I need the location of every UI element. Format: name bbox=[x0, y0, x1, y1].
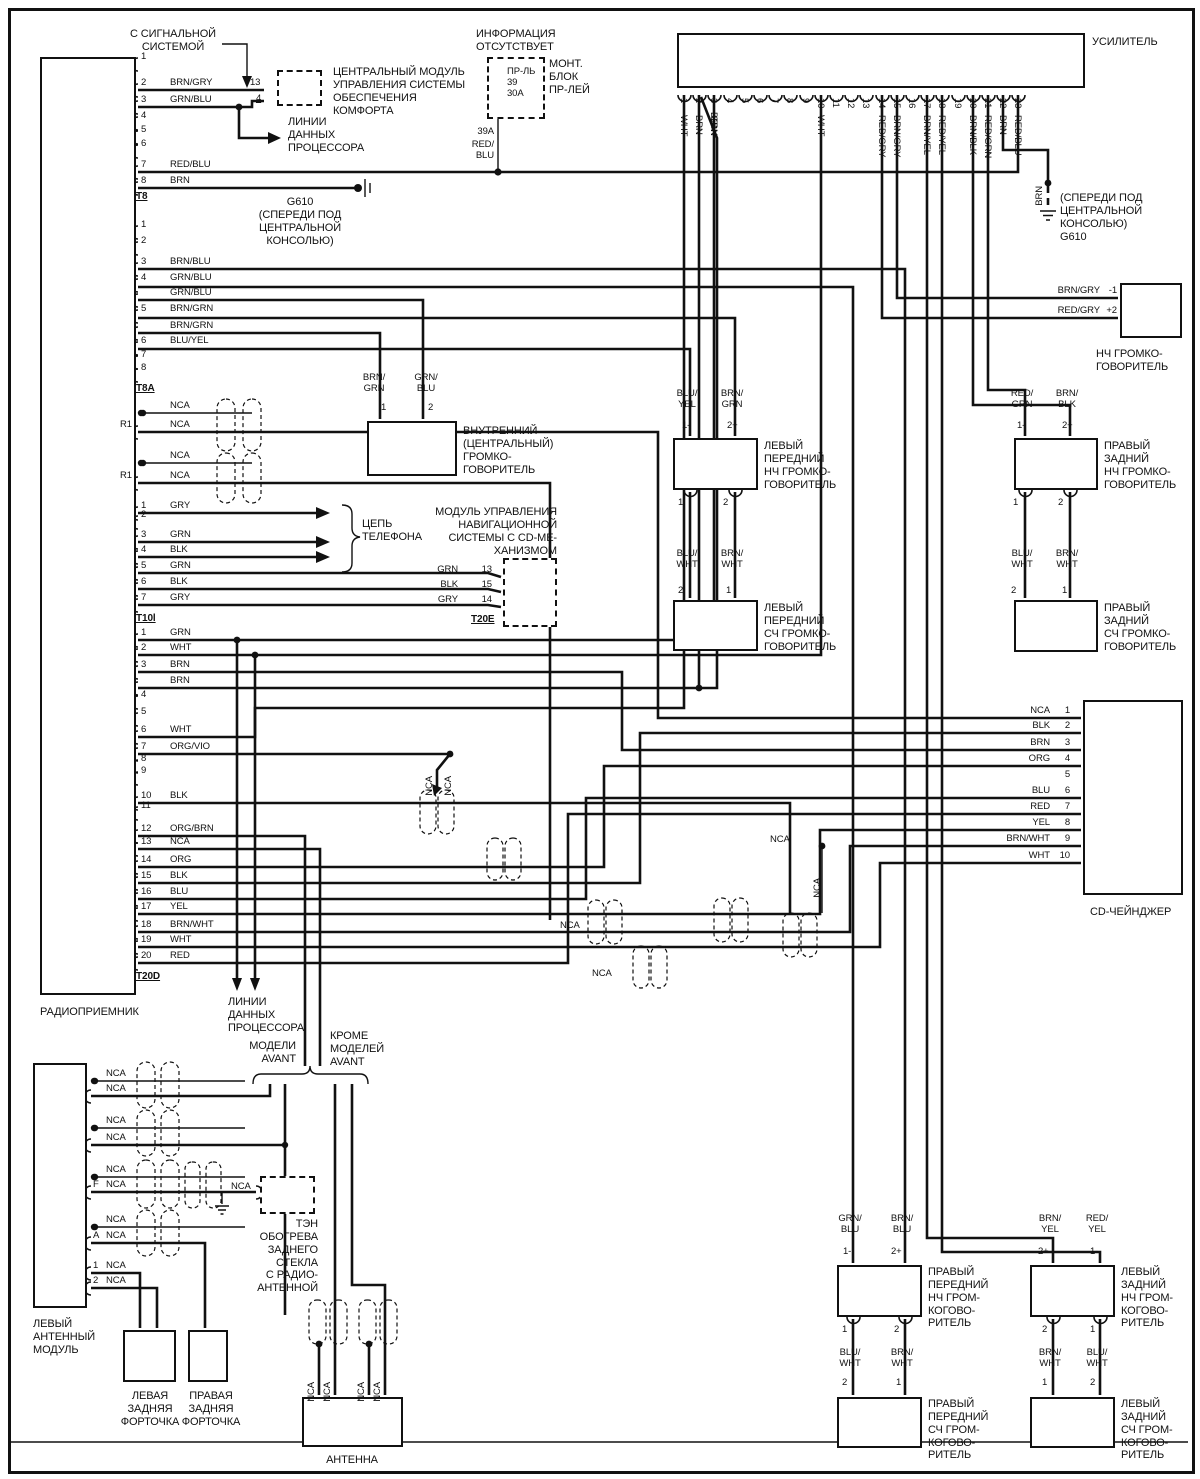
mid-nca-b: NCA bbox=[443, 776, 454, 796]
radio-t8-pin-number: 5 bbox=[141, 124, 146, 135]
left-vent-label: ЛЕВАЯ ЗАДНЯЯ ФОРТОЧКА bbox=[121, 1390, 180, 1429]
antenna-module-pins-pin-number: 1 bbox=[93, 1260, 98, 1271]
lf-front-woofer-box bbox=[673, 438, 758, 490]
ant-nca-2: NCA bbox=[322, 1382, 333, 1402]
rf-mid-p1: 1 bbox=[896, 1377, 901, 1388]
radio-t20d-wire-color: BLK bbox=[170, 870, 188, 881]
amp-pin-number: 22 bbox=[997, 98, 1008, 108]
console-woofer-label: НЧ ГРОМКО- ГОВОРИТЕЛЬ bbox=[1096, 348, 1168, 374]
radio-t20d-pin-number: 20 bbox=[141, 950, 151, 961]
cd-pins-pin-number: 6 bbox=[1065, 785, 1070, 796]
radio-t8a-wire-color: BRN/GRN bbox=[170, 320, 213, 331]
radio-t10l-pin-number: 6 bbox=[141, 576, 146, 587]
nav-t20e-wire-color: GRY bbox=[438, 594, 458, 605]
comfort-pin-4: 4 bbox=[256, 93, 261, 104]
radio-t20d-wire-color: WHT bbox=[170, 934, 191, 945]
radio-t20d-wire-color: NCA bbox=[170, 836, 190, 847]
note-signal-system: С СИГНАЛЬНОЙ СИСТЕМОЙ bbox=[130, 28, 216, 54]
internal-spk-p2: 2 bbox=[428, 402, 433, 413]
console-woofer-box bbox=[1120, 283, 1182, 338]
radio-t20d-pin-number: 7 bbox=[141, 741, 146, 752]
ant-nca-3: NCA bbox=[356, 1382, 367, 1402]
radio-t20d-pin-number: 11 bbox=[141, 800, 151, 811]
lr-link-p1: 1 bbox=[1090, 1324, 1095, 1335]
nav-module-label: МОДУЛЬ УПРАВЛЕНИЯ НАВИГАЦИОННОЙ СИСТЕМЫ … bbox=[435, 506, 557, 557]
radio-t8a-pin-number: 6 bbox=[141, 335, 146, 346]
radio-t20d-wire-color: GRN bbox=[170, 627, 191, 638]
radio-t8a-pin-number: 7 bbox=[141, 349, 146, 360]
lf-woofer-c1: BLU/ YEL bbox=[677, 388, 698, 410]
rr-mid-c1: BLU/ WHT bbox=[1011, 548, 1032, 570]
fuse-wire-color: RED/ BLU bbox=[472, 139, 494, 161]
radio-t8a-pin-number: 2 bbox=[141, 235, 146, 246]
cd-pins-pin-number: 10 bbox=[1060, 850, 1070, 861]
cd-pins-pin-number: 1 bbox=[1065, 705, 1070, 716]
radio-t20d-wire-color: BRN bbox=[170, 675, 190, 686]
amp-pin-number: 12 bbox=[845, 98, 856, 108]
radio-t10l-wire-color: GRY bbox=[170, 592, 190, 603]
rr-woofer-p1: 1- bbox=[1017, 420, 1025, 431]
radio-t8a-pin-number: 5 bbox=[141, 303, 146, 314]
console-woofer-pins-wire-color: RED/GRY bbox=[1058, 305, 1100, 316]
amp-pin-number: 6 bbox=[754, 98, 765, 103]
console-woofer-pins-wire-color: BRN/GRY bbox=[1058, 285, 1100, 296]
radio-t10l-pin-number: 7 bbox=[141, 592, 146, 603]
amp-wire-color: RED/GRY bbox=[876, 115, 887, 157]
radio-r1-wire-color: NCA bbox=[170, 400, 190, 411]
note-data-lines-top: ЛИНИИ ДАННЫХ ПРОЦЕССОРА bbox=[288, 116, 364, 155]
cd-pins-pin-number: 4 bbox=[1065, 753, 1070, 764]
cd-pins-wire-color: BRN/WHT bbox=[1006, 833, 1050, 844]
rr-link-p1: 1 bbox=[1013, 497, 1018, 508]
antenna-box bbox=[302, 1397, 403, 1447]
radio-t8-pin-number: 6 bbox=[141, 138, 146, 149]
mid-nca-e: NCA bbox=[560, 920, 580, 931]
radio-t10l-wire-color: GRY bbox=[170, 500, 190, 511]
antenna-module-pins-wire-color: NCA bbox=[106, 1083, 126, 1094]
nav-t20e-pin-number: 13 bbox=[482, 564, 492, 575]
rf-woofer-c2: BRN/ BLU bbox=[891, 1213, 913, 1235]
cd-pins-wire-color: ORG bbox=[1029, 753, 1050, 764]
radio-t20d-pin-number: 17 bbox=[141, 901, 151, 912]
ant-nca-1: NCA bbox=[306, 1382, 317, 1402]
note-avant: МОДЕЛИ AVANT bbox=[249, 1040, 296, 1066]
rr-mid-p2: 2 bbox=[1011, 585, 1016, 596]
cd-pins-wire-color: BLU bbox=[1032, 785, 1050, 796]
radio-t20d-wire-color: WHT bbox=[170, 642, 191, 653]
rf-mid-c2: BRN/ WHT bbox=[891, 1347, 913, 1369]
heater-label: ТЭН ОБОГРЕВА ЗАДНЕГО СТЕКЛА С РАДИО- АНТ… bbox=[257, 1218, 318, 1295]
radio-t10l-pin-number: 2 bbox=[141, 509, 146, 520]
cd-pins-pin-number: 5 bbox=[1065, 769, 1070, 780]
comfort-module-label: ЦЕНТРАЛЬНЫЙ МОДУЛЬ УПРАВЛЕНИЯ СИСТЕМЫ ОБ… bbox=[333, 66, 465, 117]
phone-circuit-label: ЦЕПЬ ТЕЛЕФОНА bbox=[362, 518, 422, 544]
amp-pin-number: 17 bbox=[921, 98, 932, 108]
rf-mid-p2: 2 bbox=[842, 1377, 847, 1388]
amp-wire-color: BRN bbox=[693, 115, 704, 135]
amp-wire-color: BRN bbox=[997, 115, 1008, 135]
radio-t20d-pin-number: 5 bbox=[141, 706, 146, 717]
amp-pin-number: 8 bbox=[784, 98, 795, 103]
radio-t10l-wire-color: GRN bbox=[170, 560, 191, 571]
lf-front-woofer-label: ЛЕВЫЙ ПЕРЕДНИЙ НЧ ГРОМКО- ГОВОРИТЕЛЬ bbox=[764, 440, 836, 491]
wiring-diagram-page: С СИГНАЛЬНОЙ СИСТЕМОЙЦЕНТРАЛЬНЫЙ МОДУЛЬ … bbox=[0, 0, 1200, 1479]
radio-t10l-pin-number: 4 bbox=[141, 544, 146, 555]
internal-speaker-box bbox=[367, 421, 457, 476]
amp-pin-number: 4 bbox=[724, 98, 735, 103]
radio-t10l-pin-number: 5 bbox=[141, 560, 146, 571]
nav-t20e-wire-color: GRN bbox=[437, 564, 458, 575]
antenna-module-pins-wire-color: NCA bbox=[106, 1115, 126, 1126]
radio-t8-wire-color: RED/BLU bbox=[170, 159, 210, 170]
radio-t20d-wire-color: ORG/VIO bbox=[170, 741, 210, 752]
cd-pins-wire-color: NCA bbox=[1030, 705, 1050, 716]
rr-mid-c2: BRN/ WHT bbox=[1056, 548, 1078, 570]
radio-t8-wire-color: GRN/BLU bbox=[170, 94, 212, 105]
internal-spk-c1: BRN/ GRN bbox=[363, 372, 385, 394]
lr-woofer-c1: BRN/ YEL bbox=[1039, 1213, 1061, 1235]
lr-woofer-c2: RED/ YEL bbox=[1086, 1213, 1108, 1235]
antenna-module-pins-wire-color: NCA bbox=[106, 1068, 126, 1079]
fuse-block-label: МОНТ. БЛОК ПР-ЛЕЙ bbox=[549, 58, 590, 97]
cd-pins-pin-number: 8 bbox=[1065, 817, 1070, 828]
radio-t8a-pin-number: 1 bbox=[141, 219, 146, 230]
rf-mid-c1: BLU/ WHT bbox=[839, 1347, 860, 1369]
radio-t20d-pin-number: 19 bbox=[141, 934, 151, 945]
console-woofer-pins-pin-number: +2 bbox=[1106, 305, 1117, 316]
radio-t20d-pin-number: 6 bbox=[141, 724, 146, 735]
antenna-module-box bbox=[33, 1063, 87, 1308]
radio-t8a-pin-number: 3 bbox=[141, 256, 146, 267]
radio-t20d-pin-number: 12 bbox=[141, 823, 151, 834]
ground-symbol-g610-left bbox=[354, 179, 370, 197]
radio-t20d-pin-number: 2 bbox=[141, 642, 146, 653]
radio-t8-wire-color: BRN bbox=[170, 175, 190, 186]
amp-pin-number: 14 bbox=[876, 98, 887, 108]
lf-mid-p2: 2 bbox=[678, 585, 683, 596]
amp-wire-color: WHT bbox=[815, 115, 826, 136]
amp-wire-color: BRN/BLK bbox=[967, 115, 978, 155]
radio-t20d-pin-number: 15 bbox=[141, 870, 151, 881]
radio-t8a-wire-color: GRN/BLU bbox=[170, 272, 212, 283]
ground-symbol-g610-right bbox=[1040, 211, 1056, 220]
note-no-info: ИНФОРМАЦИЯ ОТСУТСТВУЕТ bbox=[476, 28, 555, 54]
antenna-module-pins-pin-number: F bbox=[93, 1179, 99, 1190]
radio-r1-wire-color: NCA bbox=[170, 419, 190, 430]
amp-wire-color: RED/YEL bbox=[936, 115, 947, 155]
g610-right-wire: BRN bbox=[1034, 186, 1045, 206]
radio-box bbox=[40, 57, 136, 995]
amp-wire-color: RED/BLU bbox=[1012, 115, 1023, 155]
radio-t10l-pin-number: 3 bbox=[141, 529, 146, 540]
radio-t8-pin-number: 2 bbox=[141, 77, 146, 88]
cd-pins-wire-color: BLK bbox=[1032, 720, 1050, 731]
heater-nca: NCA bbox=[231, 1181, 251, 1192]
radio-t8a-wire-color: BRN/BLU bbox=[170, 256, 210, 267]
ant-nca-4: NCA bbox=[372, 1382, 383, 1402]
antenna-module-pins-wire-color: NCA bbox=[106, 1164, 126, 1175]
rf-link-p1: 1 bbox=[842, 1324, 847, 1335]
left-vent-box bbox=[123, 1330, 176, 1382]
rf-link-p2: 2 bbox=[894, 1324, 899, 1335]
amp-pin-number: 20 bbox=[967, 98, 978, 108]
amp-wire-color: BRN/GRY bbox=[891, 115, 902, 157]
ground-g610-left: G610 (СПЕРЕДИ ПОД ЦЕНТРАЛЬНОЙ КОНСОЛЬЮ) bbox=[259, 196, 341, 247]
heater-box bbox=[260, 1176, 315, 1214]
radio-t20d-pin-number: 4 bbox=[141, 689, 146, 700]
radio-r1-wire-color: NCA bbox=[170, 470, 190, 481]
amp-pin-number: 13 bbox=[860, 98, 871, 108]
lf-woofer-p1: 1- bbox=[682, 420, 690, 431]
console-woofer-pins-pin-number: -1 bbox=[1109, 285, 1117, 296]
radio-t20d-pin-number: 13 bbox=[141, 836, 151, 847]
nav-t20e-id: T20E bbox=[471, 614, 495, 626]
radio-t8-pin-number: 1 bbox=[141, 51, 146, 62]
rf-woofer-c1: GRN/ BLU bbox=[838, 1213, 861, 1235]
lf-link-p2: 2 bbox=[723, 497, 728, 508]
cd-pins-wire-color: YEL bbox=[1032, 817, 1050, 828]
lr-woofer-p1: 1- bbox=[1090, 1246, 1098, 1257]
cd-pins-wire-color: BRN bbox=[1030, 737, 1050, 748]
rr-woofer-box bbox=[1014, 438, 1098, 490]
radio-t8a-pin-number: 8 bbox=[141, 362, 146, 373]
mid-nca-c: NCA bbox=[770, 834, 790, 845]
lf-mid-p1: 1 bbox=[726, 585, 731, 596]
radio-t20d-wire-color: YEL bbox=[170, 901, 188, 912]
amp-pin-number: 1 bbox=[678, 98, 689, 103]
radio-t20d-pin-number: 9 bbox=[141, 765, 146, 776]
internal-speaker-label: ВНУТРЕННИЙ (ЦЕНТРАЛЬНЫЙ) ГРОМКО- ГОВОРИТ… bbox=[463, 425, 553, 476]
rf-mid-label: ПРАВЫЙ ПЕРЕДНИЙ СЧ ГРОМ- КОГОВО- РИТЕЛЬ bbox=[928, 1398, 988, 1462]
pin-dot bbox=[91, 1078, 97, 1084]
comfort-pin-13: 13 bbox=[250, 77, 260, 88]
lr-mid-p2: 2 bbox=[1090, 1377, 1095, 1388]
note-except-avant: КРОМЕ МОДЕЛЕЙ AVANT bbox=[330, 1030, 384, 1069]
radio-t8-pin-number: 8 bbox=[141, 175, 146, 186]
radio-t20d-pin-number: 16 bbox=[141, 886, 151, 897]
radio-t20d-pin-number: 18 bbox=[141, 919, 151, 930]
amp-wire-color: GRN bbox=[708, 115, 719, 136]
radio-t20d-pin-number: 3 bbox=[141, 659, 146, 670]
cd-pins-pin-number: 9 bbox=[1065, 833, 1070, 844]
lr-mid-p1: 1 bbox=[1042, 1377, 1047, 1388]
right-vent-box bbox=[188, 1330, 228, 1382]
amplifier-label: УСИЛИТЕЛЬ bbox=[1092, 36, 1158, 49]
lf-link-p1: 1 bbox=[678, 497, 683, 508]
lf-woofer-c2: BRN/ GRN bbox=[721, 388, 743, 410]
radio-t8a-wire-color: BLU/YEL bbox=[170, 335, 208, 346]
rr-mid-p1: 1 bbox=[1062, 585, 1067, 596]
radio-t20d-pin-number: 8 bbox=[141, 753, 146, 764]
note-data-lines-bottom: ЛИНИИ ДАННЫХ ПРОЦЕССОРА bbox=[228, 996, 304, 1035]
lf-front-mid-label: ЛЕВЫЙ ПЕРЕДНИЙ СЧ ГРОМКО- ГОВОРИТЕЛЬ bbox=[764, 602, 836, 653]
radio-r1-pin-number: R1 bbox=[120, 419, 132, 430]
radio-t20d-wire-color: ORG/BRN bbox=[170, 823, 214, 834]
pin-dot bbox=[138, 410, 144, 416]
antenna-module-pins-pin-number: A bbox=[93, 1230, 99, 1241]
amp-pin-number: 16 bbox=[906, 98, 917, 108]
mid-nca-a: NCA bbox=[424, 776, 435, 796]
nav-t20e-pin-number: 15 bbox=[482, 579, 492, 590]
rf-woofer-label: ПРАВЫЙ ПЕРЕДНИЙ НЧ ГРОМ- КОГОВО- РИТЕЛЬ bbox=[928, 1266, 988, 1330]
lr-link-p2: 2 bbox=[1042, 1324, 1047, 1335]
lf-mid-c1: BLU/ WHT bbox=[676, 548, 697, 570]
wire-layer bbox=[0, 0, 1200, 1479]
amp-pin-number: 10 bbox=[815, 98, 826, 108]
cd-pins-pin-number: 7 bbox=[1065, 801, 1070, 812]
amp-pin-number: 15 bbox=[891, 98, 902, 108]
radio-t20d-wire-color: RED bbox=[170, 950, 190, 961]
radio-t8-wire-color: BRN/GRY bbox=[170, 77, 212, 88]
lr-mid-c1: BRN/ WHT bbox=[1039, 1347, 1061, 1369]
radio-r1-pin-number: R1 bbox=[120, 470, 132, 481]
radio-t10l-wire-color: BLK bbox=[170, 544, 188, 555]
amp-pin-number: 21 bbox=[982, 98, 993, 108]
radio-t20d-pin-number: 1 bbox=[141, 627, 146, 638]
internal-spk-p1: 1 bbox=[381, 402, 386, 413]
radio-t8a-wire-color: GRN/BLU bbox=[170, 287, 212, 298]
rr-mid-box bbox=[1014, 600, 1098, 652]
amp-pin-number: 5 bbox=[739, 98, 750, 103]
antenna-module-pins-wire-color: NCA bbox=[106, 1179, 126, 1190]
radio-t20d-wire-color: BLU bbox=[170, 886, 188, 897]
radio-t20d-pin-number: 14 bbox=[141, 854, 151, 865]
rf-woofer-box bbox=[837, 1265, 922, 1317]
amp-pin-number: 23 bbox=[1012, 98, 1023, 108]
radio-t20d-wire-color: BLK bbox=[170, 790, 188, 801]
radio-t20d-wire-color: BRN bbox=[170, 659, 190, 670]
pin-dot bbox=[138, 460, 144, 466]
lr-woofer-label: ЛЕВЫЙ ЗАДНИЙ НЧ ГРОМ- КОГОВО- РИТЕЛЬ bbox=[1121, 1266, 1173, 1330]
antenna-module-pins-wire-color: NCA bbox=[106, 1230, 126, 1241]
radio-t20d-wire-color: WHT bbox=[170, 724, 191, 735]
antenna-module-label: ЛЕВЫЙ АНТЕННЫЙ МОДУЛЬ bbox=[33, 1318, 95, 1357]
amp-wire-color: WHT bbox=[678, 115, 689, 136]
radio-t8-pin-number: 3 bbox=[141, 94, 146, 105]
rr-woofer-c1: RED/ GRN bbox=[1011, 388, 1033, 410]
ground-g610-right: (СПЕРЕДИ ПОД ЦЕНТРАЛЬНОЙ КОНСОЛЬЮ) G610 bbox=[1060, 192, 1142, 243]
lf-mid-c2: BRN/ WHT bbox=[721, 548, 743, 570]
nav-t20e-pin-number: 14 bbox=[482, 594, 492, 605]
radio-t8-pin-number: 4 bbox=[141, 110, 146, 121]
amp-pin-number: 19 bbox=[952, 98, 963, 108]
cd-pins-pin-number: 2 bbox=[1065, 720, 1070, 731]
amp-pin-number: 2 bbox=[693, 98, 704, 103]
mid-nca-f: NCA bbox=[592, 968, 612, 979]
antenna-module-pins-pin-number: 2 bbox=[93, 1275, 98, 1286]
rr-link-p2: 2 bbox=[1058, 497, 1063, 508]
lr-woofer-box bbox=[1030, 1265, 1115, 1317]
rf-mid-box bbox=[837, 1397, 922, 1448]
amp-pin-number: 3 bbox=[708, 98, 719, 103]
antenna-label: АНТЕННА bbox=[326, 1454, 378, 1467]
cd-pins-pin-number: 3 bbox=[1065, 737, 1070, 748]
amp-pin-number: 18 bbox=[936, 98, 947, 108]
fuse-39a: 39А bbox=[477, 126, 494, 137]
radio-t10l-wire-color: GRN bbox=[170, 529, 191, 540]
cd-changer-box bbox=[1083, 700, 1183, 895]
radio-r1-wire-color: NCA bbox=[170, 450, 190, 461]
right-vent-label: ПРАВАЯ ЗАДНЯЯ ФОРТОЧКА bbox=[182, 1390, 241, 1429]
fuse-label: ПР-ЛЬ 39 30А bbox=[507, 66, 535, 99]
radio-t8a-id: T8A bbox=[136, 383, 155, 395]
pin-dot bbox=[91, 1125, 97, 1131]
mid-nca-d: NCA bbox=[812, 878, 823, 898]
amp-wire-color: BRN/YEL bbox=[921, 115, 932, 155]
radio-t20d-wire-color: ORG bbox=[170, 854, 191, 865]
amp-wire-color: RED/GRN bbox=[982, 115, 993, 158]
antenna-module-pins-wire-color: NCA bbox=[106, 1132, 126, 1143]
radio-t8a-pin-number: 4 bbox=[141, 272, 146, 283]
radio-t8-id: T8 bbox=[136, 191, 147, 203]
radio-t20d-id: T20D bbox=[136, 971, 160, 983]
lf-front-mid-box bbox=[673, 600, 758, 651]
radio-t8a-wire-color: BRN/GRN bbox=[170, 303, 213, 314]
cd-pins-wire-color: RED bbox=[1030, 801, 1050, 812]
lr-mid-label: ЛЕВЫЙ ЗАДНИЙ СЧ ГРОМ- КОГОВО- РИТЕЛЬ bbox=[1121, 1398, 1173, 1462]
radio-label: РАДИОПРИЕМНИК bbox=[40, 1006, 139, 1019]
lf-woofer-p2: 2+ bbox=[727, 420, 738, 431]
rr-woofer-p2: 2+ bbox=[1062, 420, 1073, 431]
lr-mid-box bbox=[1030, 1397, 1115, 1448]
rr-mid-label: ПРАВЫЙ ЗАДНИЙ СЧ ГРОМКО- ГОВОРИТЕЛЬ bbox=[1104, 602, 1176, 653]
antenna-module-pins-wire-color: NCA bbox=[106, 1275, 126, 1286]
radio-t20d-wire-color: BRN/WHT bbox=[170, 919, 214, 930]
amplifier-box bbox=[677, 33, 1085, 88]
cd-changer-label: CD-ЧЕЙНДЖЕР bbox=[1090, 906, 1171, 919]
nav-module-box bbox=[503, 558, 557, 627]
amp-pin-number: 9 bbox=[800, 98, 811, 103]
amp-pin-number: 11 bbox=[830, 98, 841, 108]
antenna-module-pins-wire-color: NCA bbox=[106, 1260, 126, 1271]
cd-pins-wire-color: WHT bbox=[1029, 850, 1050, 861]
rf-woofer-p2: 2+ bbox=[891, 1246, 902, 1257]
lr-mid-c2: BLU/ WHT bbox=[1086, 1347, 1107, 1369]
amp-pin-number: 7 bbox=[769, 98, 780, 103]
comfort-module-box bbox=[277, 70, 322, 106]
lr-woofer-p2: 2+ bbox=[1038, 1246, 1049, 1257]
radio-t10l-id: T10l bbox=[136, 613, 156, 625]
rr-woofer-label: ПРАВЫЙ ЗАДНИЙ НЧ ГРОМКО- ГОВОРИТЕЛЬ bbox=[1104, 440, 1176, 491]
radio-t10l-wire-color: BLK bbox=[170, 576, 188, 587]
internal-spk-c2: GRN/ BLU bbox=[414, 372, 437, 394]
radio-t8-pin-number: 7 bbox=[141, 159, 146, 170]
rf-woofer-p1: 1- bbox=[843, 1246, 851, 1257]
nav-t20e-wire-color: BLK bbox=[440, 579, 458, 590]
rr-woofer-c2: BRN/ BLK bbox=[1056, 388, 1078, 410]
antenna-module-pins-wire-color: NCA bbox=[106, 1214, 126, 1225]
